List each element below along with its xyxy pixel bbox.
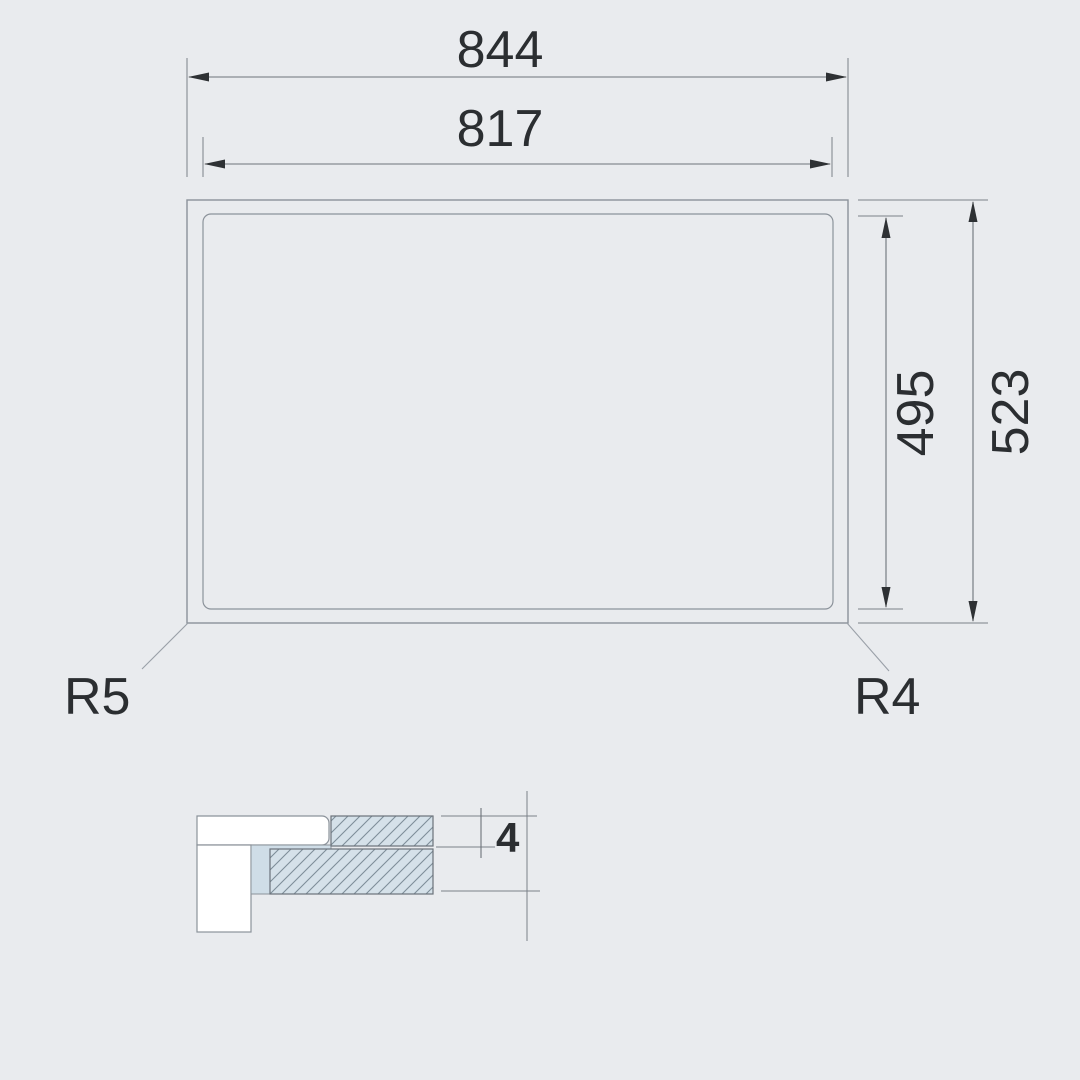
dimension-drawing-svg: 844 817 495 523: [0, 0, 1080, 1080]
technical-drawing: 844 817 495 523: [0, 0, 1080, 1080]
worktop-upper-section: [197, 816, 329, 845]
dimension-label-inner-width: 817: [457, 100, 544, 158]
dimension-label-inner-height: 495: [887, 370, 945, 457]
radius-label-r4: R4: [854, 668, 920, 726]
dimension-label-outer-width: 844: [457, 21, 544, 79]
appliance-body-section: [270, 849, 433, 894]
dimension-label-outer-height: 523: [982, 369, 1040, 456]
drawing-background: [0, 0, 1080, 1080]
worktop-lower-section: [197, 845, 251, 932]
radius-label-r5: R5: [64, 668, 130, 726]
glass-top-section: [331, 816, 433, 846]
dimension-label-glass-thickness: 4: [496, 814, 520, 861]
